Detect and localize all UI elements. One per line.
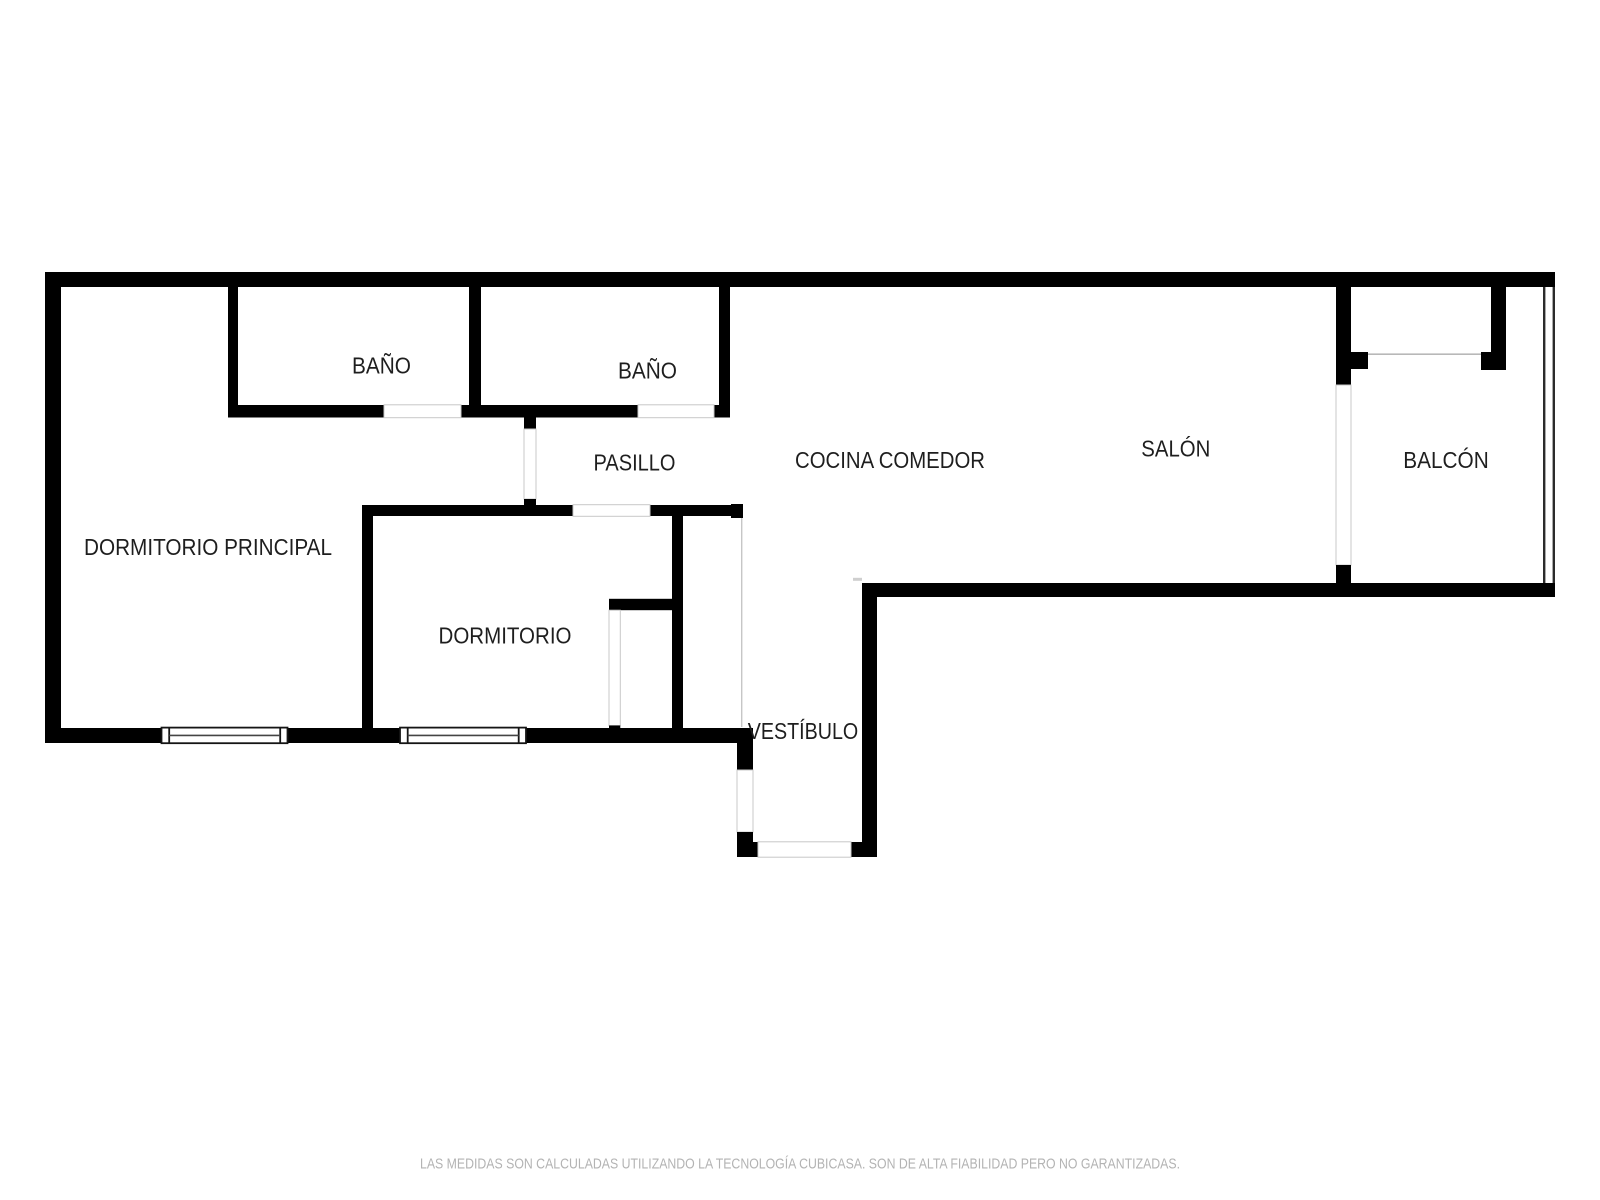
svg-text:BAÑO: BAÑO: [618, 358, 677, 384]
svg-text:VESTÍBULO: VESTÍBULO: [748, 718, 859, 744]
svg-text:BALCÓN: BALCÓN: [1403, 447, 1489, 473]
svg-text:LAS MEDIDAS SON CALCULADAS UTI: LAS MEDIDAS SON CALCULADAS UTILIZANDO LA…: [420, 1156, 1180, 1173]
svg-text:COCINA COMEDOR: COCINA COMEDOR: [795, 447, 985, 473]
svg-text:DORMITORIO PRINCIPAL: DORMITORIO PRINCIPAL: [84, 534, 332, 560]
svg-text:SALÓN: SALÓN: [1141, 436, 1210, 462]
svg-text:PASILLO: PASILLO: [594, 450, 676, 476]
svg-text:BAÑO: BAÑO: [352, 353, 411, 379]
svg-text:DORMITORIO: DORMITORIO: [439, 623, 572, 649]
